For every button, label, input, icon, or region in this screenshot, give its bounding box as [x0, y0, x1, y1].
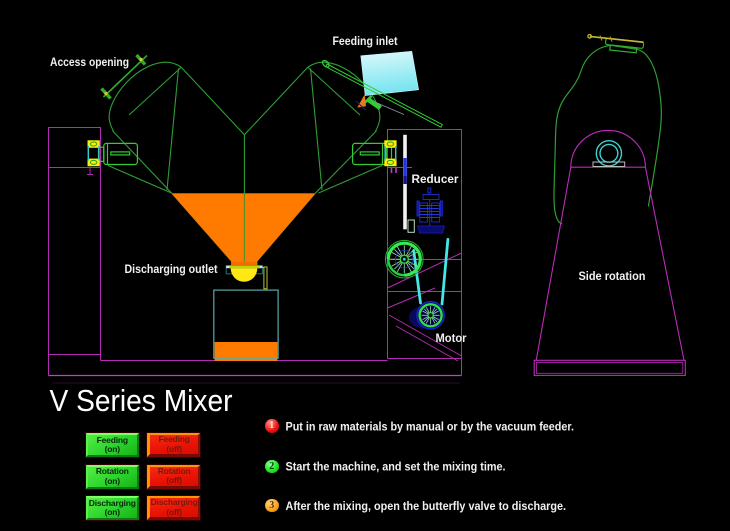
svg-text:After the mixing, open the but: After the mixing, open the butterfly val… [286, 499, 567, 513]
svg-text:Feeding inlet: Feeding inlet [333, 34, 398, 48]
svg-text:Discharging outlet: Discharging outlet [125, 262, 218, 276]
svg-text:Start the machine, and set the: Start the machine, and set the mixing ti… [286, 460, 506, 474]
svg-text:Motor: Motor [436, 331, 467, 345]
svg-text:Access opening: Access opening [50, 55, 129, 69]
svg-text:Put in raw materials by manual: Put in raw materials by manual or by the… [286, 419, 575, 433]
svg-text:Reducer: Reducer [412, 172, 459, 186]
svg-text:V Series Mixer: V Series Mixer [50, 383, 233, 418]
svg-text:Side rotation: Side rotation [579, 269, 646, 283]
